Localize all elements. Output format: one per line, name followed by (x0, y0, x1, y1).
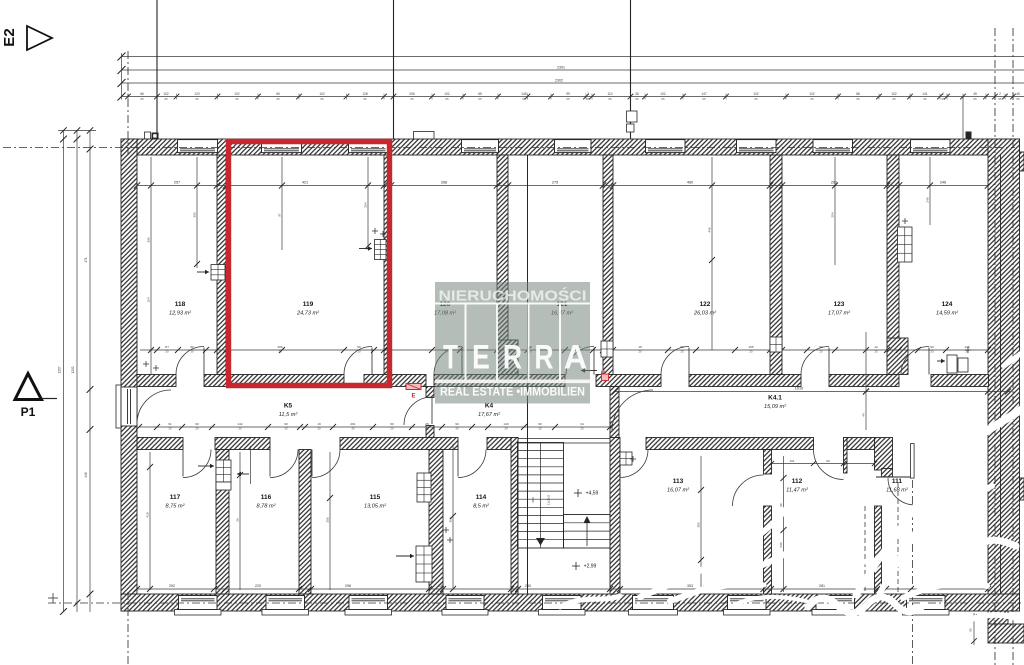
svg-text:117: 117 (170, 494, 181, 501)
svg-text:A: A (564, 339, 587, 377)
svg-text:11,68 m²: 11,68 m² (886, 488, 909, 494)
svg-text:20: 20 (425, 427, 429, 431)
svg-text:102: 102 (660, 92, 666, 96)
svg-text:246: 246 (926, 197, 930, 202)
svg-text:90: 90 (195, 422, 199, 426)
svg-text:20: 20 (190, 350, 194, 354)
svg-text:123: 123 (834, 301, 845, 308)
svg-text:142: 142 (237, 422, 242, 426)
svg-text:26: 26 (236, 518, 240, 522)
svg-text:255: 255 (326, 517, 330, 522)
svg-text:NIERUCHOMOŚCI: NIERUCHOMOŚCI (439, 287, 587, 305)
svg-text:20: 20 (680, 350, 684, 354)
svg-text:102: 102 (891, 92, 897, 96)
svg-text:230: 230 (779, 542, 783, 547)
svg-text:K4.1: K4.1 (768, 395, 782, 402)
svg-text:155: 155 (748, 345, 753, 349)
svg-text:26,03 m²: 26,03 m² (693, 311, 717, 317)
svg-text:19: 19 (317, 422, 321, 426)
svg-text:102: 102 (753, 92, 759, 96)
svg-text:65: 65 (754, 97, 758, 101)
svg-text:254: 254 (364, 202, 368, 207)
svg-text:220: 220 (255, 584, 261, 588)
svg-text:90: 90 (969, 628, 973, 632)
svg-text:20: 20 (195, 427, 199, 431)
svg-text:91: 91 (168, 422, 172, 426)
svg-text:11x16,5: 11x16,5 (547, 494, 551, 505)
svg-text:65: 65 (998, 97, 1002, 101)
svg-text:90: 90 (538, 422, 542, 426)
svg-text:65: 65 (522, 97, 526, 101)
svg-text:12: 12 (874, 345, 878, 349)
svg-text:20: 20 (278, 350, 282, 354)
svg-text:2302: 2302 (555, 79, 563, 83)
svg-text:135: 135 (964, 345, 969, 349)
svg-text:102: 102 (163, 92, 169, 96)
svg-text:471: 471 (84, 257, 88, 263)
svg-text:P1: P1 (21, 405, 36, 419)
svg-text:114: 114 (476, 494, 487, 501)
svg-text:90: 90 (779, 503, 783, 507)
svg-text:36: 36 (635, 92, 639, 96)
svg-text:65: 65 (702, 97, 706, 101)
svg-text:15: 15 (638, 345, 642, 349)
svg-text:65: 65 (856, 97, 860, 101)
svg-text:302: 302 (449, 517, 453, 522)
svg-text:20: 20 (238, 427, 242, 431)
svg-text:65: 65 (140, 97, 144, 101)
svg-text:113: 113 (673, 478, 684, 485)
svg-text:65: 65 (410, 97, 414, 101)
svg-text:380: 380 (697, 522, 701, 527)
svg-text:65: 65 (661, 97, 665, 101)
svg-text:112: 112 (792, 478, 803, 485)
svg-text:128: 128 (362, 92, 368, 96)
svg-text:11,47 m²: 11,47 m² (786, 488, 809, 494)
svg-text:E2: E2 (1, 28, 18, 46)
svg-text:65: 65 (276, 92, 280, 96)
svg-text:20: 20 (390, 427, 394, 431)
svg-text:65: 65 (923, 97, 927, 101)
svg-text:306: 306 (277, 345, 282, 349)
svg-text:111: 111 (790, 459, 795, 463)
svg-text:16,07 m²: 16,07 m² (667, 488, 690, 494)
svg-text:44: 44 (580, 422, 584, 426)
svg-text:65: 65 (1016, 97, 1020, 101)
svg-text:90: 90 (390, 422, 394, 426)
svg-text:65: 65 (478, 97, 482, 101)
svg-text:1202: 1202 (71, 366, 75, 373)
svg-text:K4: K4 (485, 403, 494, 410)
svg-text:257: 257 (174, 181, 180, 185)
svg-text:104: 104 (147, 297, 151, 302)
svg-text:25: 25 (425, 422, 429, 426)
svg-text:111: 111 (892, 478, 903, 485)
svg-text:115: 115 (370, 494, 381, 501)
svg-text:H7: H7 (165, 345, 169, 349)
svg-text:147: 147 (701, 92, 707, 96)
svg-text:65: 65 (276, 97, 280, 101)
svg-text:65: 65 (478, 92, 482, 96)
svg-text:102: 102 (319, 92, 325, 96)
svg-text:20: 20 (819, 350, 823, 354)
svg-text:17,07 m²: 17,07 m² (828, 311, 851, 317)
svg-text:268: 268 (441, 181, 447, 185)
svg-text:E: E (411, 394, 415, 400)
svg-text:T: T (443, 339, 458, 377)
svg-text:446: 446 (708, 227, 712, 232)
svg-text:65: 65 (164, 97, 168, 101)
svg-text:E: E (472, 338, 490, 376)
svg-text:30,5: 30,5 (531, 497, 535, 503)
svg-text:65: 65 (320, 97, 324, 101)
svg-text:65: 65 (892, 97, 896, 101)
svg-text:102: 102 (809, 92, 815, 96)
svg-text:275: 275 (552, 181, 558, 185)
svg-text:20: 20 (284, 427, 288, 431)
svg-text:+2,99: +2,99 (584, 564, 597, 570)
svg-text:97: 97 (278, 213, 282, 217)
svg-text:20: 20 (538, 427, 542, 431)
svg-text:20: 20 (165, 350, 169, 354)
svg-text:292: 292 (169, 584, 175, 588)
svg-text:65: 65 (608, 97, 612, 101)
svg-text:246: 246 (940, 181, 946, 185)
svg-text:261: 261 (350, 422, 355, 426)
svg-text:R: R (534, 338, 553, 376)
svg-text:20: 20 (317, 427, 321, 431)
svg-text:65: 65 (941, 97, 945, 101)
svg-text:418: 418 (146, 512, 150, 517)
svg-text:1207: 1207 (58, 366, 62, 373)
svg-text:446: 446 (84, 472, 88, 478)
svg-text:90: 90 (826, 459, 830, 463)
svg-text:13,05 m²: 13,05 m² (364, 504, 387, 510)
svg-text:102: 102 (234, 92, 240, 96)
svg-text:238: 238 (438, 584, 444, 588)
svg-text:124: 124 (942, 301, 953, 308)
svg-text:460: 460 (687, 181, 693, 185)
svg-text:353: 353 (687, 584, 693, 588)
svg-text:66: 66 (140, 92, 144, 96)
svg-text:390: 390 (147, 237, 151, 242)
svg-text:90: 90 (455, 422, 459, 426)
svg-text:17,67 m²: 17,67 m² (478, 412, 501, 418)
svg-text:148: 148 (521, 92, 527, 96)
svg-text:65: 65 (810, 97, 814, 101)
svg-text:206: 206 (409, 92, 415, 96)
svg-text:11,5 m²: 11,5 m² (279, 412, 299, 418)
svg-text:65: 65 (586, 97, 590, 101)
svg-text:110: 110 (607, 92, 612, 96)
svg-text:118: 118 (175, 301, 186, 308)
svg-text:45: 45 (973, 92, 977, 96)
svg-text:20: 20 (874, 350, 878, 354)
svg-text:390: 390 (193, 212, 197, 217)
svg-text:K5: K5 (284, 403, 293, 410)
svg-text:421: 421 (302, 181, 308, 185)
svg-text:116: 116 (261, 494, 272, 501)
svg-text:2: 2 (942, 92, 944, 96)
svg-text:281: 281 (819, 584, 825, 588)
svg-text:REAL ESTATE •IMMOBILIEN: REAL ESTATE •IMMOBILIEN (440, 385, 585, 399)
svg-text:90: 90 (284, 422, 288, 426)
svg-text:20: 20 (749, 350, 753, 354)
svg-text:14,59 m²: 14,59 m² (936, 311, 959, 317)
svg-text:R: R (503, 338, 522, 376)
svg-text:2391: 2391 (557, 66, 565, 70)
svg-text:254: 254 (831, 212, 835, 217)
svg-text:20: 20 (638, 350, 642, 354)
svg-text:65: 65 (566, 97, 570, 101)
svg-text:99: 99 (566, 92, 570, 96)
svg-text:102: 102 (444, 92, 450, 96)
svg-text:44: 44 (862, 413, 866, 417)
svg-text:20: 20 (351, 427, 355, 431)
svg-text:140: 140 (503, 422, 508, 426)
svg-text:24,73 m²: 24,73 m² (296, 311, 320, 317)
svg-text:20: 20 (580, 427, 584, 431)
svg-text:8,75 m²: 8,75 m² (166, 504, 186, 510)
svg-text:65: 65 (635, 97, 639, 101)
svg-text:2: 2 (587, 92, 589, 96)
svg-text:1010: 1010 (795, 387, 803, 391)
svg-text:119: 119 (303, 301, 314, 308)
svg-text:15,09 m²: 15,09 m² (764, 404, 787, 410)
svg-text:E: E (601, 370, 607, 374)
svg-text:296: 296 (345, 584, 351, 588)
svg-text:122: 122 (700, 301, 711, 308)
svg-text:12,93 m²: 12,93 m² (169, 311, 192, 317)
svg-text:8,78 m²: 8,78 m² (257, 504, 277, 510)
svg-text:65: 65 (973, 97, 977, 101)
svg-text:20: 20 (168, 427, 172, 431)
svg-text:90: 90 (930, 345, 934, 349)
svg-text:141: 141 (922, 92, 928, 96)
svg-text:123: 123 (194, 92, 200, 96)
svg-text:20: 20 (930, 350, 934, 354)
svg-text:20: 20 (504, 427, 508, 431)
svg-text:2: 2 (999, 92, 1001, 96)
svg-text:65: 65 (445, 97, 449, 101)
svg-text:65: 65 (195, 97, 199, 101)
svg-text:8,5 m²: 8,5 m² (473, 504, 490, 510)
svg-text:20: 20 (455, 427, 459, 431)
svg-text:+4,59: +4,59 (586, 491, 599, 497)
svg-text:45: 45 (1016, 92, 1020, 96)
svg-text:88: 88 (856, 92, 860, 96)
svg-text:65: 65 (363, 97, 367, 101)
svg-text:65: 65 (235, 97, 239, 101)
